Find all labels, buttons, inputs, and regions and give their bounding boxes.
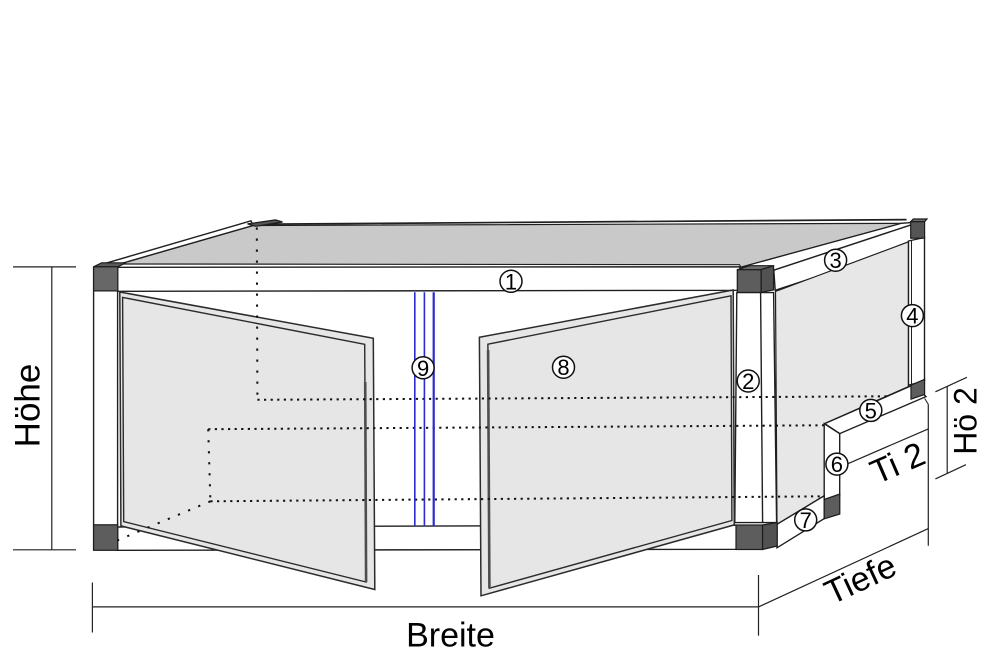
svg-text:Breite: Breite [406,617,495,655]
svg-text:3: 3 [829,248,841,273]
svg-text:1: 1 [505,269,517,294]
svg-text:9: 9 [417,356,429,381]
svg-text:Höhe: Höhe [8,364,47,448]
svg-text:5: 5 [865,398,877,423]
svg-text:6: 6 [831,452,843,477]
svg-text:2: 2 [742,369,754,394]
svg-text:7: 7 [800,508,812,533]
svg-text:4: 4 [906,304,918,329]
svg-text:Hö 2: Hö 2 [948,387,984,455]
svg-text:8: 8 [557,355,569,380]
